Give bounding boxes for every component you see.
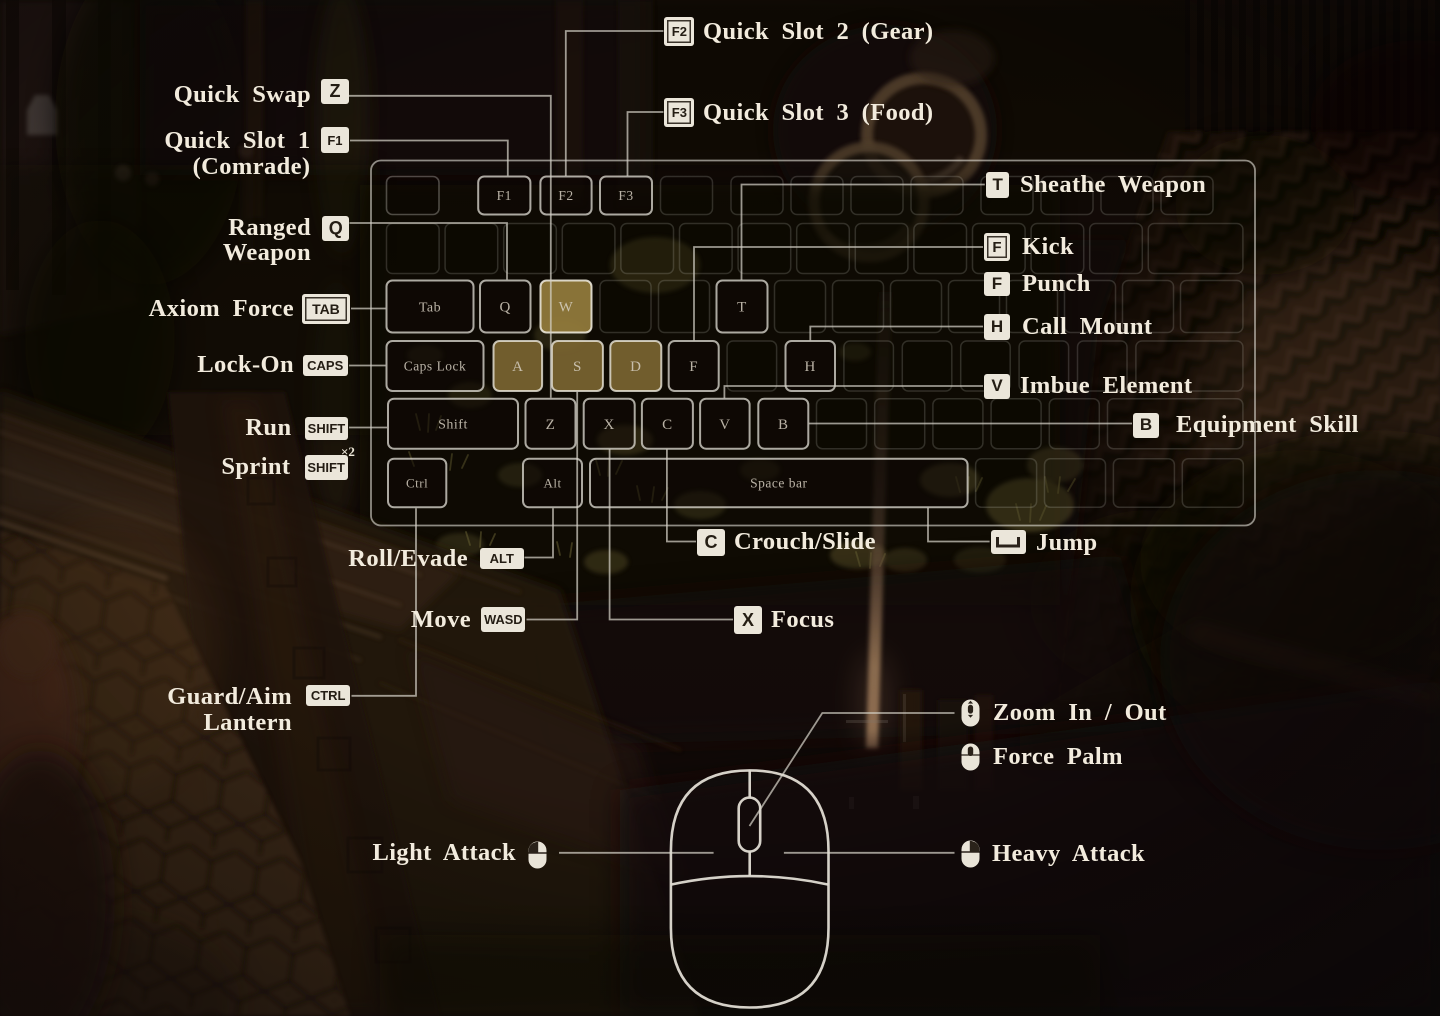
svg-text:Z: Z xyxy=(546,417,556,433)
svg-text:Tab: Tab xyxy=(419,300,441,315)
svg-text:Alt: Alt xyxy=(543,475,561,490)
svg-text:H: H xyxy=(805,359,816,375)
svg-text:S: S xyxy=(573,359,582,375)
svg-text:T: T xyxy=(737,300,747,316)
svg-text:Space bar: Space bar xyxy=(750,476,807,491)
svg-text:F2: F2 xyxy=(558,188,573,203)
svg-text:F3: F3 xyxy=(618,188,633,203)
svg-text:X: X xyxy=(604,417,615,433)
svg-text:Ctrl: Ctrl xyxy=(406,475,428,490)
svg-text:Caps Lock: Caps Lock xyxy=(404,359,467,374)
svg-text:V: V xyxy=(719,417,730,433)
svg-text:A: A xyxy=(512,359,523,375)
svg-text:Q: Q xyxy=(500,300,511,316)
svg-text:W: W xyxy=(559,300,574,316)
svg-text:D: D xyxy=(630,359,641,375)
svg-text:B: B xyxy=(778,417,789,433)
svg-text:C: C xyxy=(662,417,673,433)
svg-text:F: F xyxy=(689,359,698,375)
svg-text:F1: F1 xyxy=(497,188,512,203)
svg-text:Shift: Shift xyxy=(438,418,468,433)
